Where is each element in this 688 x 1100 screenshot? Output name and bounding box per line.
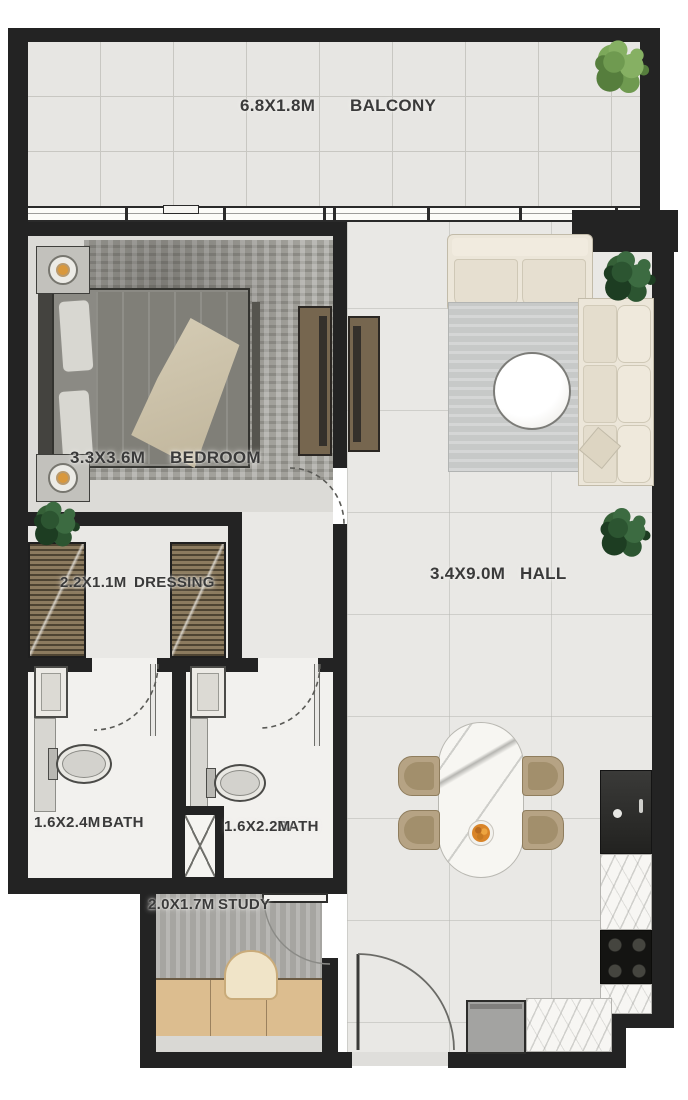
window-mullion [333, 208, 336, 220]
dining-chair [522, 756, 564, 796]
nightstand [36, 246, 90, 294]
room-name: BATH [102, 814, 144, 832]
bath2-door-swing [258, 662, 324, 734]
room-name: BALCONY [350, 96, 436, 116]
kitchen-counter [600, 854, 652, 930]
room-name: DRESSING [134, 574, 215, 592]
wall-bottom-right [448, 1052, 626, 1068]
wall-bottom-left [140, 1052, 352, 1068]
wall-partition-upper [333, 236, 347, 468]
tv-console-bedroom [298, 306, 332, 456]
room-dimensions: 2.0X1.7M [148, 896, 215, 914]
plant-icon [608, 518, 628, 538]
window-mullion [223, 208, 226, 220]
wall-partition-lower [333, 524, 347, 894]
sofa-cushion [522, 259, 586, 307]
wall-balcony-right [640, 28, 660, 214]
wardrobe [170, 542, 226, 658]
dining-chair [398, 810, 440, 850]
sofa-cushion [583, 305, 617, 363]
sofa-cushion [617, 425, 651, 483]
toilet [56, 744, 112, 784]
cooktop [600, 930, 652, 984]
wardrobe [28, 542, 86, 658]
wall-left [8, 28, 28, 894]
sofa-cushion [617, 305, 651, 363]
round-coffee-table [493, 352, 571, 430]
room-name: STUDY [218, 896, 270, 914]
table-lamp-icon [48, 255, 78, 285]
study-door-swing [260, 894, 334, 966]
bedroom-door-swing [288, 466, 346, 526]
wall-top [8, 28, 658, 42]
sliding-door-handle [163, 205, 199, 214]
window-mullion [519, 208, 522, 220]
room-name: HALL [520, 564, 567, 584]
bed-headboard [38, 284, 52, 472]
plant-icon [41, 511, 59, 529]
toilet [214, 764, 266, 802]
window-mullion [427, 208, 430, 220]
sofa-cushion [583, 365, 617, 423]
bed-foot-bench [252, 302, 260, 462]
room-name: BEDROOM [170, 448, 261, 468]
plant-icon [603, 51, 625, 73]
room-dimensions: 3.4X9.0M [430, 564, 505, 584]
tv-console-hall [348, 316, 380, 452]
sofa-cushion [454, 259, 518, 307]
dining-table [438, 722, 524, 878]
room-dimensions: 1.6X2.4M [34, 814, 101, 832]
bed-pillow [58, 299, 95, 373]
loveseat-sofa [447, 234, 593, 312]
bathroom-vanity [190, 666, 226, 718]
room-dimensions: 3.3X3.6M [70, 448, 145, 468]
sectional-sofa [578, 298, 654, 486]
sofa-cushion [617, 365, 651, 423]
wall-step-vertical [610, 1012, 626, 1068]
kitchen-counter [526, 998, 612, 1052]
plant-icon [612, 262, 633, 283]
wall-bedroom-top [8, 222, 347, 236]
floor-plan: BALCONY 6.8X1.8M BEDROOM 3.3X3.6M DRESSI… [0, 0, 688, 1100]
kitchen-sink-unit [600, 770, 652, 854]
entrance-door [352, 950, 456, 1056]
bath1-door-swing [92, 662, 160, 732]
window-mullion [323, 208, 326, 220]
service-shaft [176, 806, 224, 886]
bathroom-vanity [34, 666, 68, 718]
kitchen-appliance [466, 1000, 526, 1054]
balcony-floor [27, 41, 640, 206]
dining-chair [398, 756, 440, 796]
dining-chair [522, 810, 564, 850]
room-dimensions: 2.2X1.1M [60, 574, 127, 592]
wall-right [652, 250, 674, 1028]
room-dimensions: 1.6X2.2M [224, 818, 291, 836]
room-dimensions: 6.8X1.8M [240, 96, 315, 116]
balcony-window-band [27, 206, 640, 222]
exterior-area [626, 1028, 688, 1074]
window-mullion [125, 208, 128, 220]
sofa-back [452, 238, 588, 256]
fruit-bowl [468, 820, 494, 846]
wall-dressing-right [228, 526, 242, 658]
